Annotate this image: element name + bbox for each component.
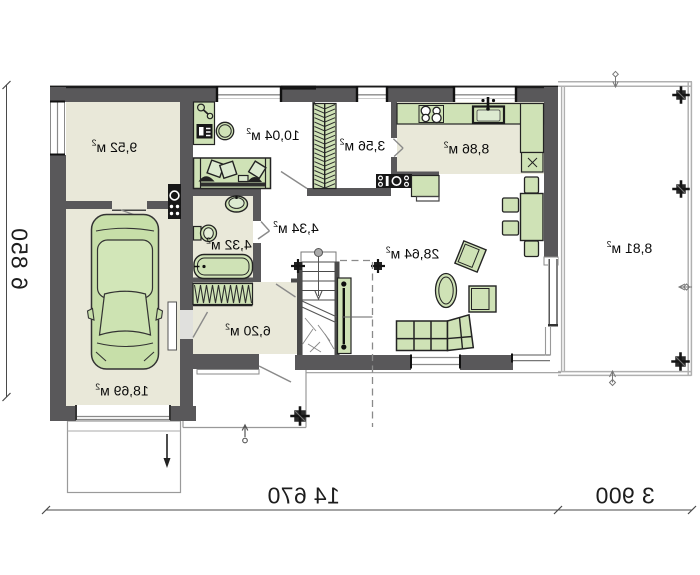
svg-text:9,52 м2: 9,52 м2 [92, 138, 138, 155]
svg-text:4,32 м2: 4,32 м2 [206, 236, 252, 253]
svg-text:4,34 м2: 4,34 м2 [273, 219, 319, 236]
svg-text:10,04 м2: 10,04 м2 [246, 126, 300, 143]
svg-text:3,56 м2: 3,56 м2 [340, 137, 386, 154]
svg-text:8,81 м2: 8,81 м2 [607, 239, 653, 256]
svg-text:28,64 м2: 28,64 м2 [386, 245, 440, 262]
svg-text:6,20 м2: 6,20 м2 [225, 322, 271, 339]
svg-text:8,86 м2: 8,86 м2 [444, 140, 490, 157]
svg-text:18,69 м2: 18,69 м2 [95, 382, 149, 399]
svg-text:14 670: 14 670 [267, 483, 340, 509]
svg-text:3 900: 3 900 [595, 483, 655, 509]
svg-text:6 850: 6 850 [7, 227, 33, 290]
